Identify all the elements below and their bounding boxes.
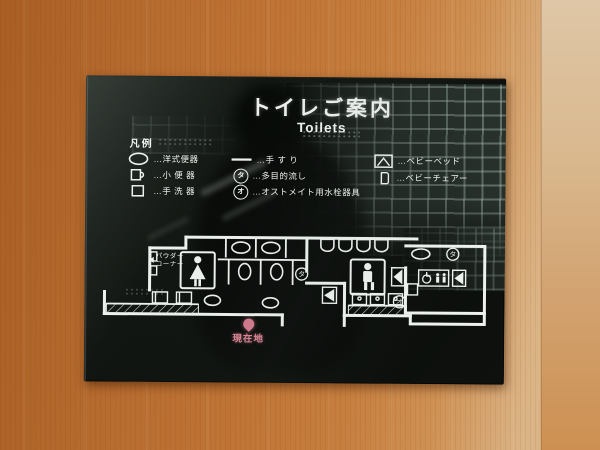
legend-row-urinal: …小 便 器 [127, 168, 195, 183]
legend-row-hand-basin: …手 洗 器 [127, 184, 195, 199]
photo-of-toilet-sign: トイレご案内 Toilets 凡例 …洋式便器 …小 便 器 [0, 0, 600, 450]
powder-corner-arrow [149, 257, 154, 263]
legend-label: …ベビーチェアー [396, 172, 468, 185]
map-marker-multipurpose-sink [296, 247, 459, 281]
wheelchair-icon [423, 272, 431, 283]
braille-dots [302, 130, 360, 137]
legend-row-ostomate: オ …オストメイト用水栓器具 [233, 185, 360, 200]
legend-label: …多目的流し [252, 170, 306, 182]
western-toilet-icon [127, 152, 149, 166]
wall-panel-right [541, 0, 600, 450]
legend-label: …手 す り [257, 154, 299, 166]
legend-row-handrail: …手 す り [230, 152, 298, 167]
legend-label: …小 便 器 [153, 169, 195, 181]
urinal-icon [127, 168, 149, 182]
legend-heading: 凡例 [130, 135, 154, 150]
sink-counter-hatch-womens [106, 304, 198, 315]
hand-wash-basin-icon [127, 184, 149, 198]
legend-label: …ベビーベッド [397, 155, 460, 167]
multipurpose-sink-marker-icon: タ [233, 168, 248, 183]
braille-dots [158, 138, 214, 145]
legend-row-western-toilet: …洋式便器 [127, 152, 198, 167]
mens-room-pictogram [350, 259, 384, 294]
legend-label: …洋式便器 [154, 153, 199, 165]
toilet-guide-sign: トイレご案内 Toilets 凡例 …洋式便器 …小 便 器 [84, 75, 506, 384]
baby-chair-icon [376, 170, 392, 185]
sign-title: トイレご案内 [226, 91, 418, 123]
current-location-marker: 現在地 [217, 318, 279, 344]
map-marker-letter: オ [396, 298, 403, 306]
legend-row-baby-chair: …ベビーチェアー [376, 171, 468, 186]
baby-bed-icon [373, 153, 393, 168]
map-marker-letter: タ [449, 250, 456, 259]
handrail-icon [230, 152, 252, 166]
urinal-symbol [321, 239, 388, 252]
map-pin-icon [240, 316, 256, 332]
legend-label: …オストメイト用水栓器具 [252, 186, 360, 199]
legend-label: …手 洗 器 [153, 185, 195, 197]
ostomate-marker-icon: オ [233, 184, 248, 199]
floor-plan-drawing: タ タ オ [100, 225, 491, 358]
baby-icons [436, 273, 446, 283]
current-location-label: 現在地 [217, 330, 279, 344]
map-marker-letter: タ [298, 270, 305, 279]
powder-corner-label: パウダー コーナー [156, 253, 190, 270]
sign-content: トイレご案内 Toilets 凡例 …洋式便器 …小 便 器 [84, 75, 506, 384]
legend-row-baby-bed: …ベビーベッド [373, 154, 460, 169]
floor-plan: タ タ オ パウダー コーナー 現在地 [100, 225, 491, 358]
legend-row-multipurpose-sink: タ …多目的流し [233, 169, 306, 184]
